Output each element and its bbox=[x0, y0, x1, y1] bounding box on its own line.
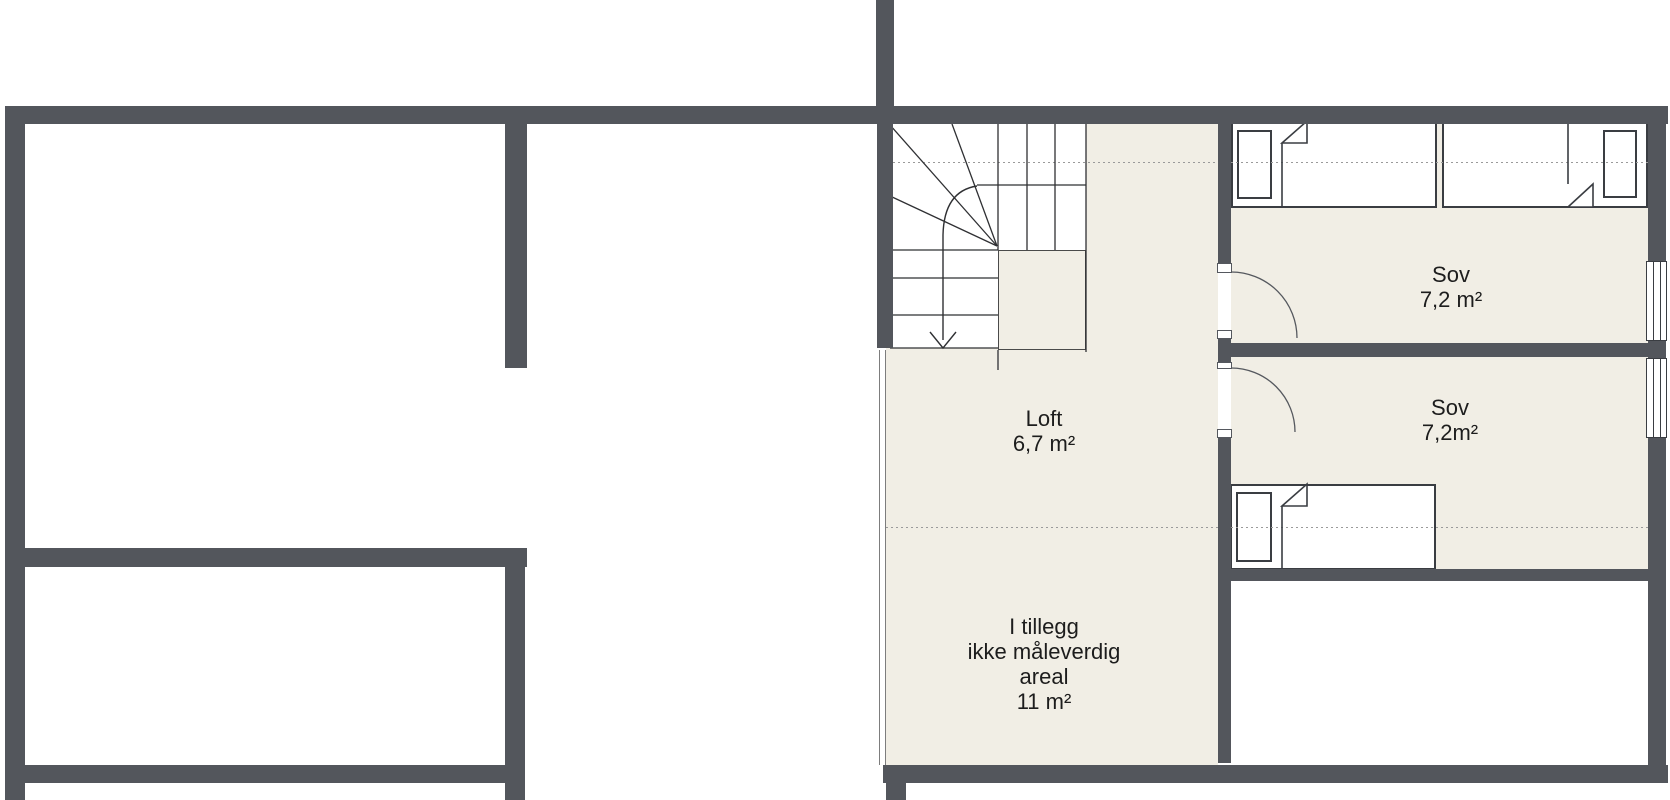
room-label-sov-bottom: Sov 7,2m² bbox=[1422, 395, 1478, 445]
door-jamb-2 bbox=[1217, 330, 1232, 339]
room-name: Loft bbox=[1013, 406, 1075, 431]
wall-partition-upper bbox=[1218, 124, 1231, 263]
door-jamb-1 bbox=[1217, 263, 1232, 273]
window-pane-line bbox=[1653, 262, 1654, 340]
wall-stair-left bbox=[877, 124, 893, 348]
wall-lowerleft-room-right bbox=[505, 548, 525, 800]
extra-area-line: 11 m² bbox=[968, 689, 1121, 714]
loft-left-boundary-line-outer bbox=[879, 350, 880, 765]
room-name: Sov bbox=[1420, 262, 1482, 287]
window-pane-line bbox=[1653, 359, 1654, 437]
room-name: Sov bbox=[1422, 395, 1478, 420]
door-jamb-3 bbox=[1217, 362, 1232, 369]
pillow-bottom-bed bbox=[1236, 492, 1272, 562]
wall-right-outer-upper bbox=[1648, 106, 1666, 261]
wall-between-bedrooms bbox=[1231, 343, 1648, 357]
stair-landing bbox=[998, 250, 1086, 350]
door-jamb-4 bbox=[1217, 429, 1232, 438]
extra-area-line: ikke måleverdig bbox=[968, 639, 1121, 664]
wall-bottom-right-section bbox=[883, 765, 1668, 783]
stair-walk-line-arrow bbox=[930, 186, 977, 348]
room-label-loft: Loft 6,7 m² bbox=[1013, 406, 1075, 456]
window-bedroom-bottom bbox=[1646, 358, 1667, 438]
wall-chimney-top bbox=[876, 0, 894, 110]
room-area: 7,2m² bbox=[1422, 420, 1478, 445]
wall-partition-lower bbox=[1218, 437, 1231, 763]
room-area: 6,7 m² bbox=[1013, 431, 1075, 456]
pillow-top-right-bed bbox=[1603, 130, 1637, 198]
extra-area-line: areal bbox=[968, 664, 1121, 689]
wall-partition-stub bbox=[1218, 338, 1231, 363]
room-area: 7,2 m² bbox=[1420, 287, 1482, 312]
loft-left-boundary-line-inner bbox=[885, 350, 886, 765]
window-bedroom-top bbox=[1646, 261, 1667, 341]
wall-bedroom-bottom bbox=[1218, 569, 1648, 581]
wall-chimney-bottom bbox=[886, 780, 906, 800]
wall-right-outer-lower bbox=[1648, 438, 1666, 783]
wall-left-outer bbox=[5, 106, 25, 800]
wall-inner-upper-left bbox=[505, 124, 527, 368]
wall-lowerleft-room-bottom bbox=[18, 765, 505, 783]
pillow-top-left-bed bbox=[1237, 130, 1272, 199]
room-label-sov-top: Sov 7,2 m² bbox=[1420, 262, 1482, 312]
floor-plan: Sov 7,2 m² Sov 7,2m² Loft 6,7 m² I tille… bbox=[0, 0, 1670, 800]
room-label-extra-area: I tillegg ikke måleverdig areal 11 m² bbox=[968, 614, 1121, 714]
window-pane-line bbox=[1660, 359, 1661, 437]
extra-area-line: I tillegg bbox=[968, 614, 1121, 639]
window-pane-line bbox=[1660, 262, 1661, 340]
wall-mid-left bbox=[18, 548, 527, 567]
wall-top-outer bbox=[5, 106, 1668, 124]
wall-right-outer-mid bbox=[1648, 341, 1666, 358]
